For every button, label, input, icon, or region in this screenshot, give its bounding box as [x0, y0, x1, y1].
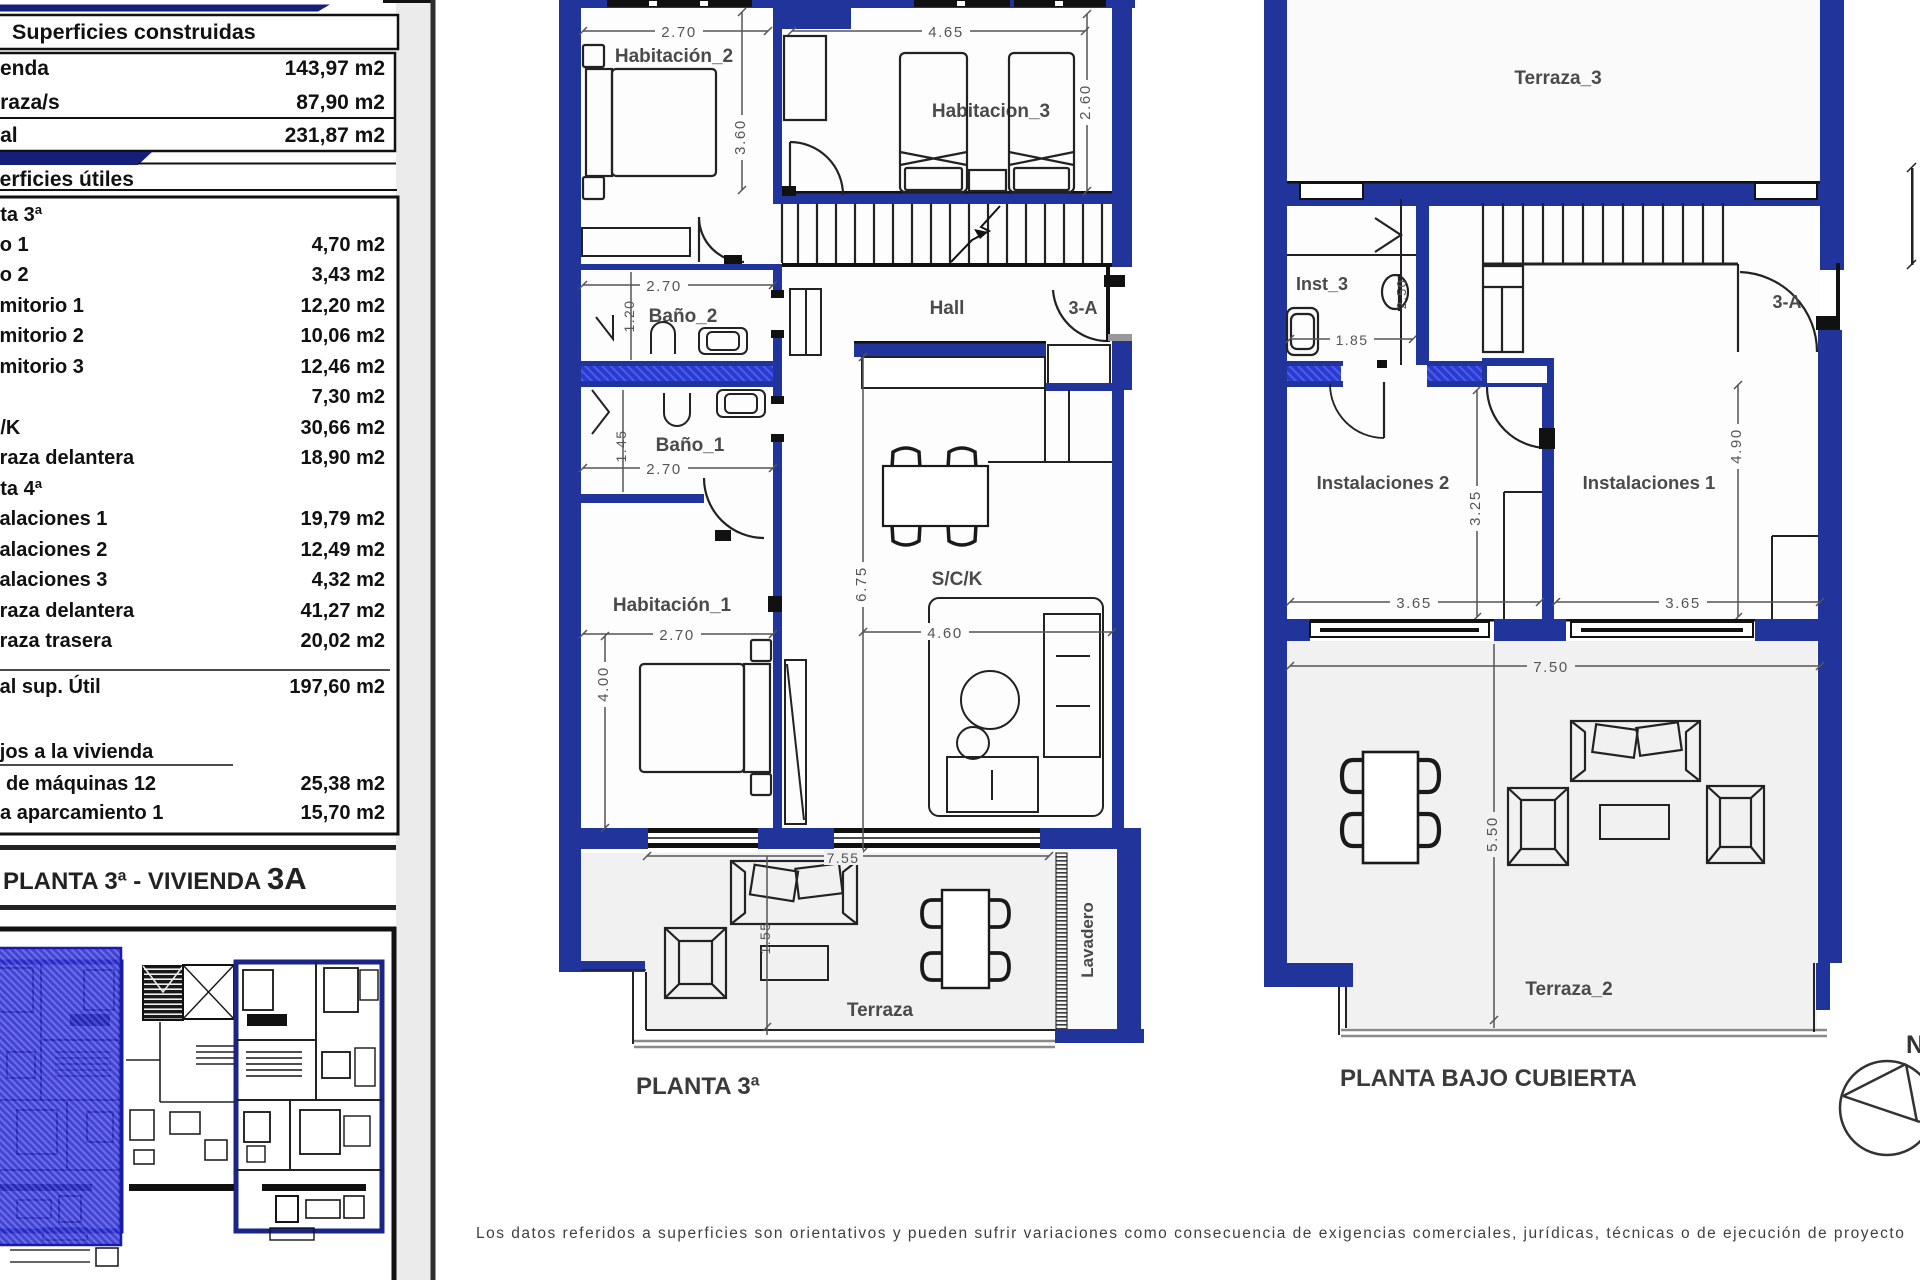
svg-text:Instalaciones 1: Instalaciones 1: [0, 508, 107, 530]
svg-text:Superficies construidas: Superficies construidas: [12, 20, 256, 44]
svg-text:3.65: 3.65: [1665, 595, 1701, 612]
svg-text:143,97 m2: 143,97 m2: [285, 57, 385, 80]
svg-text:3-A: 3-A: [1068, 298, 1097, 318]
svg-text:Habitacion_3: Habitacion_3: [932, 101, 1050, 122]
svg-text:2.70: 2.70: [661, 24, 697, 41]
svg-text:S/C/K: S/C/K: [0, 417, 21, 439]
svg-text:3.65: 3.65: [1396, 595, 1432, 612]
svg-text:3.60: 3.60: [732, 119, 749, 155]
svg-text:S/C/K: S/C/K: [932, 569, 983, 590]
svg-text:1.85: 1.85: [1336, 332, 1369, 348]
svg-text:1.45: 1.45: [613, 430, 629, 463]
svg-text:231,87 m2: 231,87 m2: [285, 124, 385, 147]
svg-text:4.60: 4.60: [927, 625, 963, 642]
svg-text:Los datos referidos a superfic: Los datos referidos a superficies son or…: [476, 1225, 1905, 1242]
svg-text:Baño 1: Baño 1: [0, 234, 29, 256]
svg-text:10,06 m2: 10,06 m2: [300, 325, 385, 347]
svg-text:3.25: 3.25: [1467, 490, 1484, 526]
svg-text:4.00: 4.00: [595, 666, 612, 702]
svg-text:12,46 m2: 12,46 m2: [300, 356, 385, 378]
svg-text:Terraza delantera: Terraza delantera: [0, 447, 135, 469]
svg-text:Instalaciones 1: Instalaciones 1: [1583, 472, 1716, 493]
svg-text:Terraza delantera: Terraza delantera: [0, 600, 135, 622]
svg-text:1.20: 1.20: [621, 300, 637, 333]
svg-text:20,02 m2: 20,02 m2: [300, 630, 385, 652]
svg-text:12,49 m2: 12,49 m2: [300, 539, 385, 561]
svg-text:Superficies útiles: Superficies útiles: [0, 168, 134, 191]
svg-text:Instalaciones 2: Instalaciones 2: [1317, 472, 1450, 493]
svg-text:Dormitorio 2: Dormitorio 2: [0, 325, 84, 347]
svg-text:1.55: 1.55: [757, 922, 773, 955]
svg-text:Cuarto de máquinas 12: Cuarto de máquinas 12: [0, 773, 156, 795]
svg-text:Habitación_1: Habitación_1: [613, 595, 732, 616]
svg-text:2.60: 2.60: [1077, 84, 1094, 120]
svg-text:4.90: 4.90: [1728, 428, 1745, 464]
svg-text:19,79 m2: 19,79 m2: [300, 508, 385, 530]
svg-text:197,60 m2: 197,60 m2: [289, 676, 385, 698]
svg-text:Dormitorio 1: Dormitorio 1: [0, 295, 84, 317]
svg-text:Terraza_2: Terraza_2: [1525, 979, 1612, 1000]
svg-text:2.50: 2.50: [1394, 279, 1409, 309]
svg-text:18,90 m2: 18,90 m2: [300, 447, 385, 469]
svg-text:Baño 2: Baño 2: [0, 264, 29, 286]
svg-text:2.70: 2.70: [646, 461, 682, 478]
svg-text:Inst_3: Inst_3: [1296, 274, 1348, 294]
svg-text:PLANTA 3ª: PLANTA 3ª: [636, 1073, 760, 1100]
svg-text:Terraza trasera: Terraza trasera: [0, 630, 113, 652]
svg-text:Anejos a la vivienda: Anejos a la vivienda: [0, 741, 154, 763]
svg-text:5.50: 5.50: [1484, 816, 1501, 852]
svg-text:Lavadero: Lavadero: [1078, 902, 1097, 978]
svg-text:2.70: 2.70: [659, 627, 695, 644]
svg-text:Total: Total: [0, 124, 18, 147]
svg-text:Vivienda: Vivienda: [0, 57, 49, 80]
svg-text:25,38 m2: 25,38 m2: [300, 773, 385, 795]
svg-text:7.50: 7.50: [1533, 659, 1569, 676]
svg-text:30,66 m2: 30,66 m2: [300, 417, 385, 439]
svg-text:Total sup. Útil: Total sup. Útil: [0, 674, 101, 698]
svg-text:4.65: 4.65: [928, 24, 964, 41]
svg-text:Dormitorio 3: Dormitorio 3: [0, 356, 84, 378]
svg-text:15,70 m2: 15,70 m2: [300, 802, 385, 824]
svg-text:Planta 4ª: Planta 4ª: [0, 478, 43, 500]
svg-text:2.70: 2.70: [646, 278, 682, 295]
svg-text:PLANTA BAJO CUBIERTA: PLANTA BAJO CUBIERTA: [1340, 1065, 1637, 1092]
svg-text:3,43 m2: 3,43 m2: [312, 264, 385, 286]
svg-text:7.55: 7.55: [827, 850, 860, 866]
svg-text:4,70 m2: 4,70 m2: [312, 234, 385, 256]
svg-text:Instalaciones 3: Instalaciones 3: [0, 569, 107, 591]
svg-text:7,30 m2: 7,30 m2: [312, 386, 385, 408]
svg-text:Hall: Hall: [930, 298, 965, 319]
svg-text:Terraza/s: Terraza/s: [0, 91, 60, 114]
svg-text:4,32 m2: 4,32 m2: [312, 569, 385, 591]
svg-text:Instalaciones 2: Instalaciones 2: [0, 539, 107, 561]
svg-text:Planta 3ª: Planta 3ª: [0, 204, 43, 226]
svg-text:Terraza_3: Terraza_3: [1514, 68, 1601, 89]
svg-text:Baño_1: Baño_1: [656, 435, 725, 456]
svg-text:Baño_2: Baño_2: [649, 306, 718, 327]
svg-text:Terraza: Terraza: [847, 1000, 914, 1021]
svg-text:6.75: 6.75: [853, 566, 870, 602]
svg-text:12,20 m2: 12,20 m2: [300, 295, 385, 317]
svg-text:87,90 m2: 87,90 m2: [296, 91, 385, 114]
svg-text:Plaza aparcamiento 1: Plaza aparcamiento 1: [0, 802, 163, 824]
svg-text:N: N: [1906, 1031, 1920, 1059]
svg-text:41,27 m2: 41,27 m2: [300, 600, 385, 622]
svg-text:3-A: 3-A: [1772, 292, 1801, 312]
svg-text:Habitación_2: Habitación_2: [615, 46, 733, 67]
